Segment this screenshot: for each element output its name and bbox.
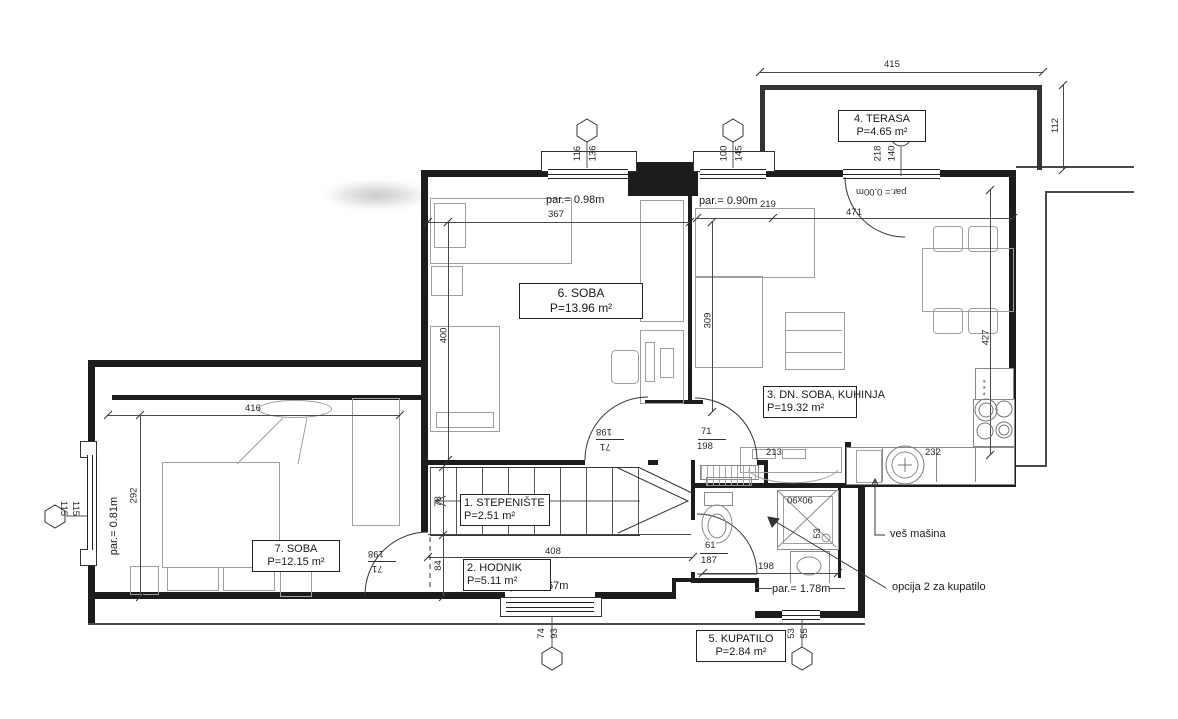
parapet-081: par.= 0.81m: [108, 497, 120, 555]
room-area: P=13.96 m²: [523, 301, 639, 316]
parapet-098: par.= 0.98m: [546, 194, 604, 206]
washer-leader: [875, 480, 885, 535]
room-name: 4. TERASA: [842, 113, 922, 126]
stove-burner: [977, 423, 993, 439]
dim-55: 55: [799, 628, 810, 639]
door-dim-71: 71: [701, 426, 712, 437]
room-label-soba6: 6. SOBA P=13.96 m²: [519, 283, 643, 319]
kitchen-stars: * * *: [977, 379, 988, 395]
dim-400: 400: [438, 328, 449, 344]
window-symbol-hexagon: [541, 646, 564, 671]
room-area: P=4.65 m²: [842, 126, 922, 139]
bath-sink-basin: [797, 557, 821, 575]
room-label-hodnik: 2. HODNIK P=5.11 m²: [463, 559, 551, 591]
stove-burner: [975, 399, 997, 421]
dim-115b: 115: [70, 501, 81, 516]
room-area: P=5.11 m²: [467, 575, 547, 588]
room-area: P=2.51 m²: [464, 510, 546, 523]
parapet-000: par.= 0.00m: [856, 186, 906, 197]
stair-break: [640, 468, 692, 493]
door-dim-187: 187: [701, 555, 717, 566]
dim-136: 136: [587, 146, 598, 162]
room-name: 5. KUPATILO: [700, 633, 782, 646]
plan-linework: [0, 0, 1178, 719]
door-arc-room6: [585, 397, 648, 460]
stove-burner: [996, 422, 1012, 438]
dim-140: 140: [886, 146, 897, 162]
dim-309: 309: [702, 313, 713, 329]
parapet-090: par.= 0.90m: [699, 195, 757, 207]
dim-232: 232: [925, 447, 941, 458]
room-area: P=19.32 m²: [767, 402, 853, 415]
door-dim-198-flipped: 198: [596, 426, 612, 437]
dim-115: 115: [58, 501, 69, 516]
dim-112: 112: [1050, 118, 1061, 133]
dim-53: 53: [786, 628, 797, 639]
room-name: 2. HODNIK: [467, 562, 547, 575]
annotation-option2: opcija 2 za kupatilo: [892, 581, 986, 593]
dim-ticks: [104, 68, 1067, 601]
room-name: 3. DN. SOBA, KUHINJA: [767, 389, 853, 402]
parapet-178: par.= 1.78m: [772, 583, 830, 595]
door-dim-71-flipped: 71: [372, 563, 383, 574]
dim-78: 78: [433, 496, 444, 507]
room-label-soba7: 7. SOBA P=12.15 m²: [252, 540, 340, 572]
dim-116: 116: [572, 146, 583, 161]
window-symbol-hexagon: [791, 646, 814, 671]
dresser-arc: [748, 470, 838, 483]
stove-burner: [999, 425, 1009, 435]
toilet-bowl: [702, 505, 732, 543]
dim-84: 84: [433, 560, 444, 571]
dim-427: 427: [980, 330, 991, 346]
dim-198-bath: 198: [758, 561, 774, 572]
dim-218: 218: [872, 146, 883, 162]
option-leader: [768, 517, 886, 588]
door-dim-198-flipped: 198: [368, 548, 384, 559]
dim-213: 213: [766, 447, 782, 458]
door-dim-61: 61: [705, 540, 716, 551]
floor-plan: 415 112 116 136 100 145 140 218 par.= 0.…: [0, 0, 1178, 719]
room-name: 7. SOBA: [256, 543, 336, 556]
dim-471: 471: [846, 207, 862, 218]
annotation-washer: veš mašina: [890, 528, 946, 540]
lamp-projection: [237, 418, 283, 464]
dim-408: 408: [545, 546, 561, 557]
dim-100: 100: [718, 146, 729, 162]
dim-74: 74: [536, 628, 547, 639]
room-name: 6. SOBA: [523, 286, 639, 301]
kitchen-sink-cross: [898, 458, 912, 472]
dim-93: 93: [549, 628, 560, 639]
shower-size: 90x90: [787, 494, 813, 505]
room-label-dnsoba: 3. DN. SOBA, KUHINJA P=19.32 m²: [763, 386, 857, 418]
room-name: 1. STEPENIŠTE: [464, 497, 546, 510]
stove-burner: [979, 403, 993, 417]
lamp-projection: [298, 418, 307, 464]
dim-145: 145: [733, 146, 744, 162]
dim-53-shower: 53: [812, 528, 823, 539]
window-symbol-hexagon: [576, 118, 599, 143]
room-label-terasa: 4. TERASA P=4.65 m²: [838, 110, 926, 142]
door-dim-71-flipped: 71: [600, 441, 611, 452]
stove-burner: [996, 401, 1012, 417]
door-dim-198: 198: [697, 441, 713, 452]
room-area: P=2.84 m²: [700, 646, 782, 659]
dim-219: 219: [760, 199, 776, 210]
option-leader-arrow: [768, 517, 779, 527]
dim-416: 416: [245, 403, 261, 414]
dim-367: 367: [548, 209, 564, 220]
window-symbol-hexagon: [722, 118, 745, 143]
room-area: P=12.15 m²: [256, 556, 336, 569]
dim-292: 292: [128, 488, 139, 504]
dim-415: 415: [884, 59, 900, 70]
room-label-stepeniste: 1. STEPENIŠTE P=2.51 m²: [460, 494, 550, 526]
room-label-kupatilo: 5. KUPATILO P=2.84 m²: [696, 630, 786, 662]
